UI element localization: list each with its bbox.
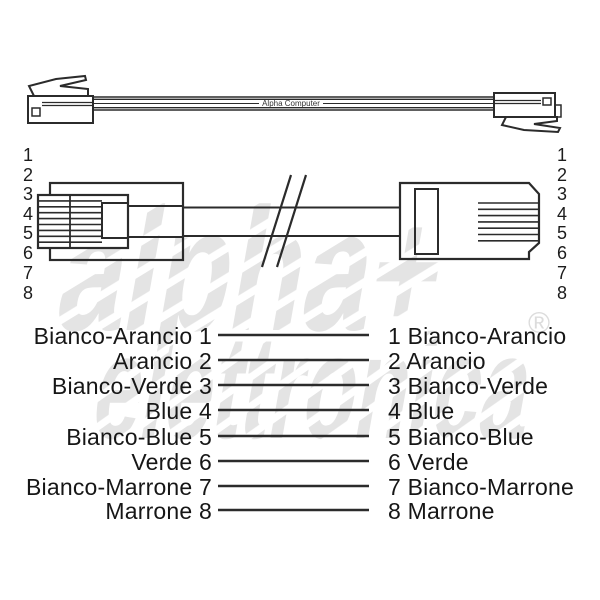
pin-number: 7 — [557, 263, 567, 283]
pin-number: 8 — [23, 283, 33, 303]
right-wire-label: 8 Marrone — [388, 498, 495, 524]
left-wire-label: Bianco-Marrone 7 — [26, 474, 212, 500]
right-wire-label: 4 Blue — [388, 398, 454, 424]
rj45-wiring-diagram: alpha+ elettronica ® Alpha Computer — [0, 0, 600, 600]
pin-number: 4 — [557, 204, 567, 224]
left-wire-label: Verde 6 — [131, 449, 212, 475]
top-right-rj45-plug — [494, 93, 561, 132]
cable-assembly-top: Alpha Computer — [28, 76, 561, 132]
plug-contact-window — [543, 98, 551, 105]
left-wire-label: Blue 4 — [146, 398, 212, 424]
left-wire-label: Bianco-Verde 3 — [52, 373, 212, 399]
pin-number: 1 — [23, 145, 33, 165]
plug-latch-icon — [29, 76, 88, 96]
right-wire-label: 2 Arancio — [388, 348, 486, 374]
cable-jacket: Alpha Computer — [93, 97, 494, 110]
right-wire-label: 6 Verde — [388, 449, 469, 475]
pin-number: 5 — [23, 223, 33, 243]
left-pin-numbers: 1 2 3 4 5 6 7 8 — [23, 145, 33, 303]
right-wire-label: 5 Bianco-Blue — [388, 424, 534, 450]
wiring-row: Bianco-Marrone 7 7 Bianco-Marrone — [26, 474, 574, 500]
right-pin-numbers: 1 2 3 4 5 6 7 8 — [557, 145, 567, 303]
pin-number: 8 — [557, 283, 567, 303]
right-wire-label: 1 Bianco-Arancio — [388, 323, 566, 349]
contact-pins — [478, 203, 539, 241]
left-wire-label: Bianco-Blue 5 — [66, 424, 212, 450]
plug-inner-lines — [494, 101, 541, 104]
left-wire-label: Marrone 8 — [105, 498, 212, 524]
pin-number: 3 — [23, 184, 33, 204]
pin-number: 2 — [23, 165, 33, 185]
cable-print-label: Alpha Computer — [262, 99, 320, 108]
right-wire-label: 7 Bianco-Marrone — [388, 474, 574, 500]
plug-contact-window — [32, 108, 40, 116]
pin-number: 6 — [23, 243, 33, 263]
top-left-rj45-plug — [28, 76, 93, 123]
wiring-row: Marrone 8 8 Marrone — [105, 498, 494, 524]
pin-number: 5 — [557, 223, 567, 243]
plug-inner-lines — [42, 103, 93, 106]
left-wire-label: Bianco-Arancio 1 — [34, 323, 212, 349]
pin-number: 2 — [557, 165, 567, 185]
pin-number: 4 — [23, 204, 33, 224]
pin-number: 3 — [557, 184, 567, 204]
plug-latch-icon — [502, 117, 560, 132]
left-wire-label: Arancio 2 — [113, 348, 212, 374]
pin-number: 1 — [557, 145, 567, 165]
pin-number: 6 — [557, 243, 567, 263]
plug-body — [28, 96, 93, 123]
right-wire-label: 3 Bianco-Verde — [388, 373, 548, 399]
pin-number: 7 — [23, 263, 33, 283]
